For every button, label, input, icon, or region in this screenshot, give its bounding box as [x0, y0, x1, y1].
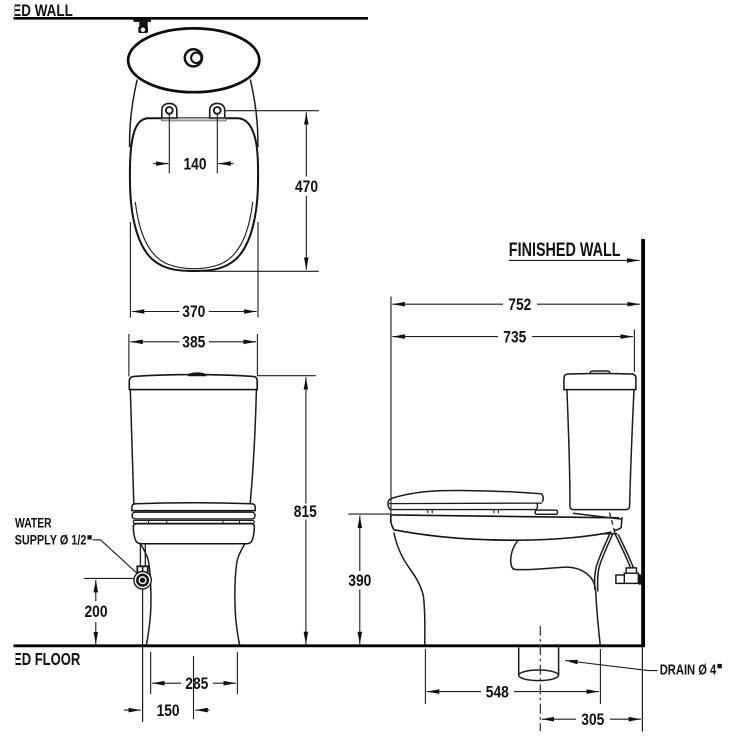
- svg-text:ED FLOOR: ED FLOOR: [13, 649, 81, 669]
- svg-text:200: 200: [85, 603, 108, 621]
- svg-text:390: 390: [348, 572, 371, 590]
- svg-text:385: 385: [182, 334, 205, 352]
- svg-text:285: 285: [185, 675, 208, 693]
- svg-text:140: 140: [184, 156, 207, 174]
- svg-text:735: 735: [503, 328, 526, 346]
- svg-text:470: 470: [295, 178, 318, 196]
- svg-text:815: 815: [294, 503, 317, 521]
- svg-text:548: 548: [486, 683, 509, 701]
- svg-text:FINISHED WALL: FINISHED WALL: [509, 240, 621, 261]
- svg-text:150: 150: [157, 702, 180, 720]
- svg-text:DRAIN Ø 4: DRAIN Ø 4: [660, 663, 717, 679]
- svg-text:SUPPLY Ø 1/2: SUPPLY Ø 1/2: [15, 533, 87, 548]
- svg-text:370: 370: [182, 303, 205, 321]
- svg-text:305: 305: [581, 711, 604, 729]
- svg-text:WATER: WATER: [15, 516, 52, 531]
- svg-text:752: 752: [508, 296, 531, 314]
